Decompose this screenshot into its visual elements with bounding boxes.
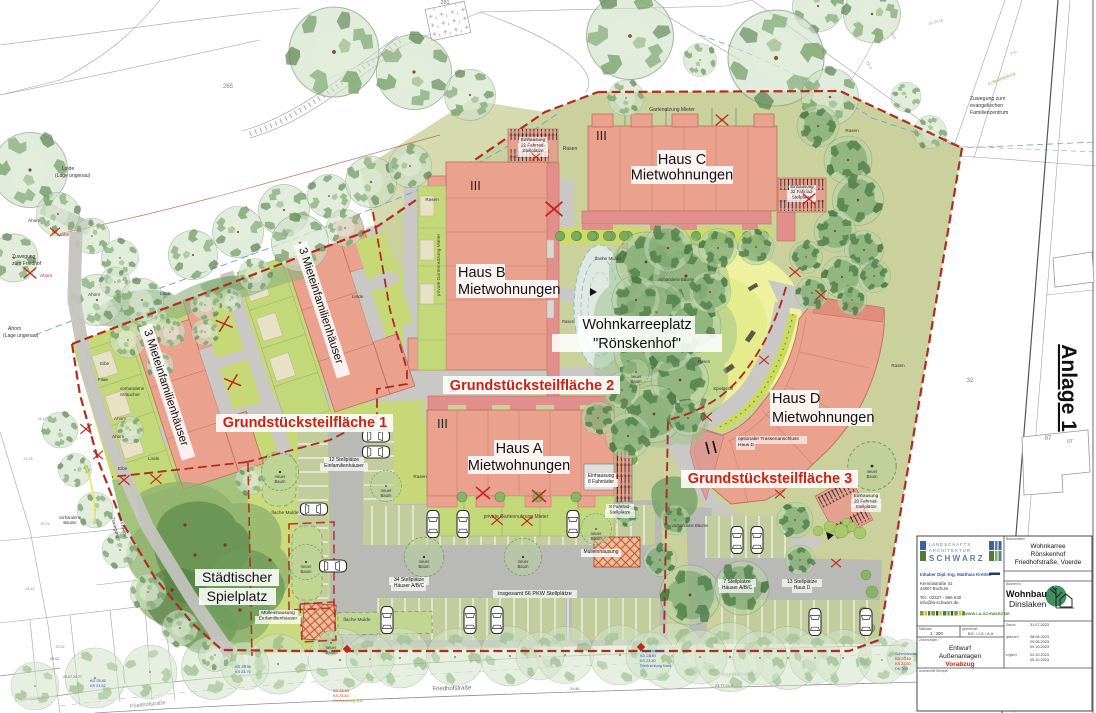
svg-text:07: 07: [1045, 436, 1052, 442]
svg-text:Spielgerät: Spielgerät: [713, 386, 734, 391]
svg-text:Mietwohnungen: Mietwohnungen: [468, 458, 570, 474]
svg-text:ergänzt: ergänzt: [1006, 653, 1017, 657]
svg-text:(Lage ungenau): (Lage ungenau): [55, 173, 91, 179]
svg-text:Vorabzug: Vorabzug: [945, 661, 974, 668]
svg-text:A R C H I T E K T U R: A R C H I T E K T U R: [929, 548, 970, 553]
svg-text:Einfamilienhäuser: Einfamilienhäuser: [259, 616, 298, 622]
svg-text:Eibe: Eibe: [100, 361, 110, 366]
svg-text:Rasen: Rasen: [698, 359, 711, 364]
svg-text:Rönskenhof: Rönskenhof: [1031, 551, 1066, 558]
svg-text:67: 67: [1067, 439, 1073, 445]
svg-text:gezeichnet: gezeichnet: [962, 627, 978, 631]
svg-text:265: 265: [223, 84, 234, 90]
svg-text:Ahorn: Ahorn: [40, 273, 53, 278]
svg-text:KS 23.30: KS 23.30: [640, 659, 656, 663]
svg-text:KD 25.80: KD 25.80: [90, 679, 106, 683]
svg-text:Haus D: Haus D: [738, 442, 755, 448]
svg-text:Mietwohnungen: Mietwohnungen: [631, 168, 733, 184]
svg-text:25.02: 25.02: [50, 657, 60, 661]
svg-text:Unterschrift Stempel: Unterschrift Stempel: [919, 669, 948, 673]
svg-text:KD 23.80: KD 23.80: [640, 654, 656, 658]
svg-text:Wohnbau: Wohnbau: [1006, 589, 1047, 599]
svg-text:Häuser A/B/C: Häuser A/B/C: [394, 583, 425, 589]
svg-text:Baum: Baum: [381, 493, 392, 498]
svg-text:insgesamt 66 PKW Stellplätze: insgesamt 66 PKW Stellplätze: [498, 591, 572, 597]
svg-text:Familienzentrum: Familienzentrum: [970, 110, 1008, 116]
svg-text:Haus D: Haus D: [794, 585, 811, 591]
svg-text:flache Mulde: flache Mulde: [271, 510, 299, 516]
svg-text:Haus C: Haus C: [658, 152, 706, 168]
svg-text:Rasen: Rasen: [413, 474, 427, 479]
svg-text:Dinslaken: Dinslaken: [1009, 599, 1047, 609]
svg-text:"Rönskenhof": "Rönskenhof": [593, 336, 681, 352]
svg-text:05.10.2023: 05.10.2023: [1030, 658, 1049, 662]
svg-text:Ahorn: Ahorn: [114, 416, 127, 421]
svg-text:Mülleinhausung: Mülleinhausung: [583, 549, 618, 555]
svg-text:KS 23.43: KS 23.43: [333, 694, 349, 698]
svg-text:8 Fahrräder: 8 Fahrräder: [588, 479, 614, 485]
svg-text:Grundstücksteilfläche 1: Grundstücksteilfläche 1: [223, 415, 387, 431]
svg-text:flache Mulde: flache Mulde: [343, 617, 371, 623]
svg-text:Stellplätze: Stellplätze: [855, 504, 877, 509]
svg-text:optionaler Trassenanschluss: optionaler Trassenanschluss: [738, 436, 799, 442]
svg-text:24.43: 24.43: [26, 587, 35, 591]
svg-text:Bauvorhaben: Bauvorhaben: [1006, 537, 1025, 541]
svg-text:WWW.LA-SCHWARZ.DE: WWW.LA-SCHWARZ.DE: [964, 611, 1010, 616]
svg-text:Baum: Baum: [301, 569, 312, 574]
svg-text:Gartenutzung Mieter: Gartenutzung Mieter: [649, 107, 695, 113]
svg-text:evangelischen: evangelischen: [970, 103, 1003, 109]
svg-text:info@la-schwarz.de: info@la-schwarz.de: [920, 600, 959, 605]
svg-text:Fließrichtung Nord: Fließrichtung Nord: [640, 664, 671, 668]
svg-text:Linde: Linde: [148, 456, 160, 461]
svg-text:Zeichnungen :: Zeichnungen :: [919, 638, 939, 642]
svg-text:Städtischer: Städtischer: [202, 569, 272, 585]
svg-text:Eibe: Eibe: [118, 466, 128, 471]
svg-text:private Gartennutzung Mieter: private Gartennutzung Mieter: [436, 234, 442, 297]
svg-text:flache Mulde: flache Mulde: [595, 256, 621, 261]
svg-text:vorhandene Bäume: vorhandene Bäume: [658, 277, 695, 282]
svg-text:Rasen: Rasen: [891, 363, 905, 368]
svg-text:09.10.2023: 09.10.2023: [1030, 645, 1049, 649]
svg-text:III: III: [596, 128, 607, 143]
svg-text:Haus B: Haus B: [458, 265, 506, 281]
svg-text:31.07.2023: 31.07.2023: [1030, 623, 1049, 627]
svg-text:B.E. / J.G. / A.H.: B.E. / J.G. / A.H.: [968, 632, 994, 636]
svg-text:1 : 200: 1 : 200: [930, 631, 943, 636]
svg-text:KD 25.60: KD 25.60: [333, 689, 349, 693]
svg-text:Ahorn: Ahorn: [88, 292, 101, 297]
svg-text:24.86: 24.86: [570, 687, 580, 691]
svg-text:Baum: Baum: [867, 474, 878, 479]
svg-text:Inhaber Dipl.-Ing. Matthias Kr: Inhaber Dipl.-Ing. Matthias Krettek: [920, 572, 992, 577]
svg-text:Mietwohnungen: Mietwohnungen: [772, 410, 874, 426]
svg-text:KS 22.50: KS 22.50: [895, 662, 911, 666]
svg-text:25.02: 25.02: [56, 645, 65, 649]
svg-text:Friedhofstraße, Voerde: Friedhofstraße, Voerde: [1015, 559, 1082, 566]
svg-text:Linde: Linde: [62, 166, 74, 172]
svg-text:23.77 24.8: 23.77 24.8: [715, 684, 733, 688]
svg-text:02.10.2023: 02.10.2023: [1030, 653, 1049, 657]
svg-text:Ahorn: Ahorn: [28, 218, 41, 223]
svg-text:Haus D: Haus D: [772, 391, 820, 407]
svg-text:Ahorn: Ahorn: [112, 434, 125, 439]
svg-text:vorhandene: vorhandene: [120, 386, 145, 391]
svg-text:8 Fahrrad-: 8 Fahrrad-: [609, 504, 631, 509]
svg-text:Fließrichtung Süd: Fließrichtung Süd: [333, 699, 363, 703]
svg-text:Grundstücksteilfläche 3: Grundstücksteilfläche 3: [688, 471, 852, 487]
svg-text:08.08.2023: 08.08.2023: [1030, 635, 1049, 639]
svg-text:Sträucher: Sträucher: [120, 392, 140, 397]
svg-text:Einhausung: Einhausung: [521, 137, 546, 142]
svg-text:29.08.2023: 29.08.2023: [1030, 640, 1049, 644]
svg-text:L A N D S C H A F T S: L A N D S C H A F T S: [929, 542, 970, 547]
svg-text:Einhausung: Einhausung: [854, 493, 879, 498]
svg-text:Mietwohnungen: Mietwohnungen: [458, 282, 560, 298]
svg-text:S C H W A R Z: S C H W A R Z: [929, 554, 983, 563]
svg-text:32: 32: [967, 378, 974, 384]
svg-text:Häuser A/B/C: Häuser A/B/C: [722, 585, 753, 591]
svg-text:Einfamilienhäuser: Einfamilienhäuser: [324, 463, 364, 469]
svg-text:Ahorn: Ahorn: [8, 326, 22, 332]
svg-text:III: III: [437, 416, 448, 431]
svg-text:Wohnkarreeplatz: Wohnkarreeplatz: [582, 317, 691, 333]
svg-text:Spielplatz: Spielplatz: [207, 588, 268, 604]
svg-text:Haus A: Haus A: [496, 441, 543, 457]
svg-text:Baum: Baum: [419, 564, 430, 569]
svg-text:Linde: Linde: [160, 291, 172, 296]
svg-text:geändert: geändert: [1006, 635, 1019, 639]
svg-text:23.78: 23.78: [24, 457, 33, 461]
svg-text:Datum: Datum: [1006, 623, 1016, 627]
svg-text:zum Friedhof: zum Friedhof: [12, 261, 42, 267]
svg-text:Baum: Baum: [275, 479, 286, 484]
svg-text:KD 25.96: KD 25.96: [235, 665, 251, 669]
svg-text:Anlage 1: Anlage 1: [1057, 344, 1080, 432]
svg-text:DN 300: DN 300: [895, 667, 908, 671]
svg-text:Stellplätze: Stellplätze: [522, 148, 544, 153]
svg-text:Zuwegung: Zuwegung: [12, 254, 36, 260]
svg-text:Entwurf: Entwurf: [949, 645, 971, 652]
svg-text:Bäume: Bäume: [63, 520, 77, 525]
svg-text:KS 23.52: KS 23.52: [90, 684, 106, 688]
svg-text:22 Fahrrad-: 22 Fahrrad-: [521, 143, 545, 148]
svg-text:Rasen: Rasen: [845, 128, 859, 133]
svg-text:Baum: Baum: [631, 379, 642, 384]
svg-text:44807 Bochum: 44807 Bochum: [920, 586, 949, 591]
svg-text:Filae: Filae: [98, 377, 108, 382]
svg-text:Regenwasser: Regenwasser: [640, 649, 664, 653]
svg-text:KD 23.60: KD 23.60: [895, 657, 911, 661]
svg-text:Rasen: Rasen: [562, 319, 575, 324]
svg-text:25.79: 25.79: [41, 522, 50, 526]
svg-text:Mülleinhausung: Mülleinhausung: [261, 610, 295, 616]
svg-text:Stellplätze: Stellplätze: [609, 509, 631, 514]
svg-text:Baum: Baum: [591, 536, 602, 541]
svg-text:20 Fahrrad-: 20 Fahrrad-: [854, 498, 878, 503]
svg-text:281: 281: [440, 0, 449, 6]
svg-text:Zuwegung zum: Zuwegung zum: [970, 96, 1005, 102]
svg-text:Bauherr/in: Bauherr/in: [1006, 582, 1021, 586]
svg-text:25.07 24.77: 25.07 24.77: [63, 675, 82, 679]
svg-text:Außenanlagen: Außenanlagen: [939, 653, 982, 660]
svg-text:vorhandene Bäume: vorhandene Bäume: [672, 523, 709, 528]
svg-text:(Lage ungenau): (Lage ungenau): [3, 333, 39, 339]
svg-text:Linde: Linde: [352, 294, 364, 299]
svg-text:Rasen: Rasen: [563, 146, 578, 152]
svg-text:Grundstücksteilfläche 2: Grundstücksteilfläche 2: [450, 378, 614, 394]
svg-text:Eibe: Eibe: [60, 232, 70, 237]
svg-text:III: III: [470, 178, 481, 193]
svg-text:Wohnkarree: Wohnkarree: [1030, 543, 1066, 550]
svg-text:Baum: Baum: [518, 564, 529, 569]
svg-text:Rasen: Rasen: [425, 197, 439, 202]
svg-text:KS 23.76: KS 23.76: [235, 670, 251, 674]
